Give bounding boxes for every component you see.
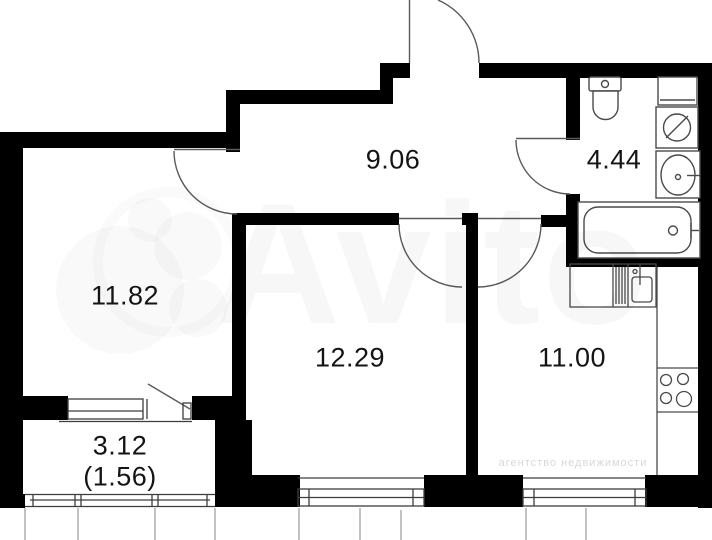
kitchen-window [523,478,646,506]
bedroom-window [298,478,424,506]
bathroom-sink [656,151,700,198]
watermark-circles [56,192,238,354]
agency-watermark: агентство недвижимости [499,457,648,469]
room-label-hallway: 9.06 [366,145,421,176]
balcony-glazing [25,494,215,507]
balcony-door [148,384,190,409]
entrance-door [410,0,480,63]
stove [657,368,698,412]
room-label-balcony: 3.12 [93,431,148,462]
room-label-bedroom: 12.29 [315,343,385,374]
lower-mullion-lines [25,508,586,540]
toilet [589,77,621,119]
room-label-balcony-reduced: (1.56) [83,462,157,493]
avito-watermark: Avito [216,178,650,350]
room-label-living-room: 11.82 [91,281,159,312]
room-label-kitchen: 11.00 [538,343,606,374]
room-label-bathroom: 4.44 [587,145,642,176]
floor-plan: Avito агентство недвижимости [0,0,712,540]
washing-machine [656,107,698,148]
shelf [658,77,697,105]
balcony-block-window [59,399,192,422]
